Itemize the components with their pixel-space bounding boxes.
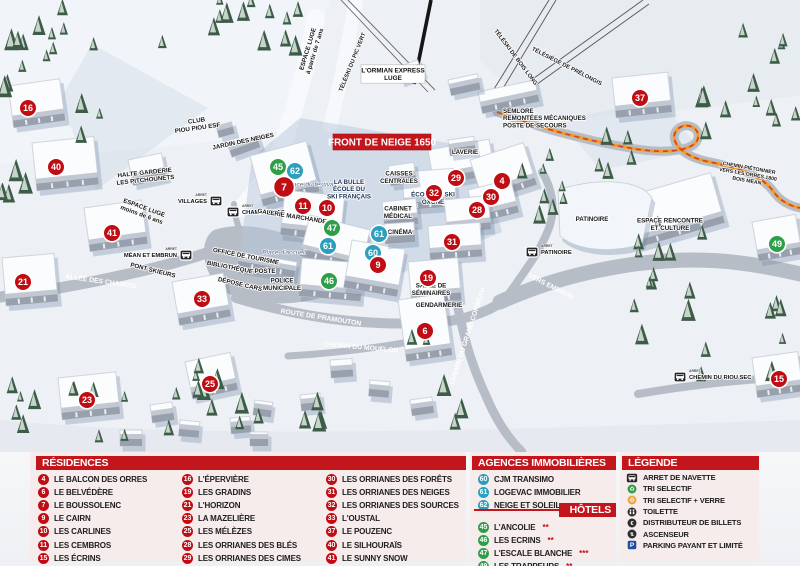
- number-badge: 23: [182, 513, 193, 524]
- map-label-poste: POSTE: [255, 268, 276, 275]
- number-badge: 40: [326, 540, 337, 551]
- svg-text:19: 19: [423, 273, 433, 283]
- number-badge: 45: [478, 522, 489, 533]
- residence-item-23: 23LA MAZELIÈRE: [182, 512, 326, 525]
- residence-item-7: 7LE BOUSSOLENC: [38, 499, 182, 512]
- residence-item-19: 19LES GRADINS: [182, 486, 326, 499]
- hotel-stars: **: [566, 562, 572, 566]
- legend-item-label: LES ORRIANES DES CIMES: [198, 554, 301, 563]
- svg-text:25: 25: [205, 379, 215, 389]
- number-badge: 21: [182, 500, 193, 511]
- number-badge: 37: [326, 526, 337, 537]
- hotels-divider: [474, 509, 562, 511]
- legend-item-label: LES ORRIANES DES BLÉS: [198, 541, 297, 550]
- map-marker-10: 10: [318, 199, 336, 217]
- legende-item-arret-de-navette: ARRET DE NAVETTE: [626, 472, 756, 483]
- svg-text:SKI FRANÇAIS: SKI FRANÇAIS: [327, 194, 371, 201]
- number-badge: 19: [182, 487, 193, 498]
- legende-list: ARRET DE NAVETTE♻TRI SELECTIF♻TRI SELECT…: [626, 472, 756, 551]
- svg-text:ARRET: ARRET: [165, 247, 178, 251]
- svg-text:6: 6: [422, 326, 427, 336]
- map-label-cabinet: CABINETMÉDICAL: [384, 205, 412, 219]
- svg-text:15: 15: [774, 374, 784, 384]
- svg-text:ARRET: ARRET: [242, 204, 255, 208]
- residence-item-30: 30LES ORRIANES DES FORÊTS: [326, 473, 470, 486]
- resort-map: recycle-greenrecycle-greenrecycle-greenr…: [0, 0, 800, 452]
- legend-item-label: L'ANCOLIE: [494, 523, 535, 532]
- map-marker-6: 6: [416, 322, 434, 340]
- map-label-patinoire: PATINOIRE: [576, 216, 609, 223]
- residence-item-31: 31LES ORRIANES DES NEIGES: [326, 486, 470, 499]
- number-badge: 29: [182, 553, 193, 564]
- map-marker-29: 29: [447, 169, 465, 187]
- map-marker-19: 19: [419, 269, 437, 287]
- legende-item-label: TRI SELECTIF + VERRE: [643, 496, 725, 505]
- svg-text:ESPACE RENCONTRE: ESPACE RENCONTRE: [637, 217, 703, 224]
- legend-item-label: CJM TRANSIMO: [494, 475, 554, 484]
- legend-item-label: LE BOUSSOLENC: [54, 501, 121, 510]
- legend-item-label: LES ORRIANES DES NEIGES: [342, 488, 450, 497]
- svg-text:30: 30: [486, 192, 496, 202]
- map-label-place-d-accueil: Place d'accueil: [262, 249, 306, 256]
- parking-icon: P: [626, 539, 638, 551]
- legend-strip: RÉSIDENCES 4LE BALCON DES ORRES6LE BELVÉ…: [0, 452, 800, 566]
- number-badge: 41: [326, 553, 337, 564]
- map-label-laverie: LAVERIE: [452, 149, 478, 156]
- legend-item-label: LES GRADINS: [198, 488, 251, 497]
- svg-text:REMONTÉES MÉCANIQUES: REMONTÉES MÉCANIQUES: [503, 114, 586, 122]
- svg-text:CINÉMA: CINÉMA: [388, 228, 413, 236]
- svg-text:POLICE: POLICE: [270, 277, 293, 284]
- legend-item-label: LES TRAPPEURS: [494, 562, 559, 566]
- svg-text:10: 10: [322, 203, 332, 213]
- map-marker-61: 61: [370, 225, 388, 243]
- legende-item-label: DISTRIBUTEUR DE BILLETS: [643, 518, 741, 527]
- map-label-l-ormian-express: L'ORMIAN EXPRESSLUGE: [361, 65, 425, 83]
- agencies-hotels-panel: AGENCES IMMOBILIÈRES 60CJM TRANSIMO61LOG…: [470, 452, 616, 562]
- legend-item-label: LES ÉCRINS: [54, 554, 101, 563]
- residence-item-33: 33L'OUSTAL: [326, 512, 470, 525]
- map-marker-33: 33: [193, 290, 211, 308]
- legend-item-label: LE BALCON DES ORRES: [54, 475, 147, 484]
- legende-item-tri-selectif: ♻TRI SELECTIF: [626, 483, 756, 494]
- legend-item-label: L'HORIZON: [198, 501, 240, 510]
- number-badge: 10: [38, 526, 49, 537]
- legende-item-label: TRI SELECTIF: [643, 484, 692, 493]
- svg-text:21: 21: [18, 277, 28, 287]
- svg-text:MÉDICAL: MÉDICAL: [384, 212, 412, 220]
- svg-text:CABINET: CABINET: [384, 205, 412, 212]
- residences-header: RÉSIDENCES: [36, 456, 466, 470]
- agency-item-60: 60CJM TRANSIMO: [478, 473, 612, 486]
- map-marker-23: 23: [78, 391, 96, 409]
- residence-item-15: 15LES ÉCRINS: [38, 552, 182, 565]
- legend-item-label: LE CAIRN: [54, 514, 91, 523]
- legende-item-distributeur-de-billets: €DISTRIBUTEUR DE BILLETS: [626, 517, 756, 528]
- legende-panel: LÉGENDE ARRET DE NAVETTE♻TRI SELECTIF♻TR…: [620, 452, 759, 562]
- legende-item-ascenseur: ⇅ASCENSEUR: [626, 528, 756, 539]
- map-label-caisses: CAISSESCENTRALES: [380, 170, 418, 184]
- map-marker-28: 28: [468, 201, 486, 219]
- map-marker-7: 7: [274, 177, 295, 198]
- map-marker-49: 49: [768, 235, 786, 253]
- legend-item-label: LE BELVÉDÈRE: [54, 488, 113, 497]
- legende-item-label: TOILETTE: [643, 507, 678, 516]
- svg-text:9: 9: [375, 260, 380, 270]
- legend-item-label: LES CARLINES: [54, 527, 111, 536]
- number-badge: 61: [478, 487, 489, 498]
- legend-item-label: LES ORRIANES DES SOURCES: [342, 501, 459, 510]
- map-label-gendarmerie: GENDARMERIE: [416, 302, 462, 309]
- bus-icon: [626, 472, 638, 484]
- legend-item-label: LOGEVAC IMMOBILIER: [494, 488, 580, 497]
- hotel-item-49: 49LES TRAPPEURS**: [478, 560, 612, 566]
- svg-text:ET CULTURE: ET CULTURE: [651, 225, 690, 232]
- svg-text:⇅: ⇅: [630, 532, 635, 538]
- svg-text:SÉMINAIRES: SÉMINAIRES: [412, 289, 451, 297]
- svg-text:45: 45: [273, 162, 283, 172]
- number-badge: 32: [326, 500, 337, 511]
- svg-text:VILLAGES: VILLAGES: [178, 199, 207, 205]
- residence-item-25: 25LES MÉLÈZES: [182, 525, 326, 538]
- map-marker-16: 16: [19, 99, 37, 117]
- number-badge: 46: [478, 535, 489, 546]
- hotels-list: 45L'ANCOLIE**46LES ECRINS**47L'ESCALE BL…: [478, 521, 612, 566]
- svg-text:46: 46: [324, 276, 334, 286]
- map-marker-37: 37: [631, 89, 649, 107]
- svg-text:23: 23: [82, 395, 92, 405]
- hotel-stars: **: [542, 523, 548, 532]
- legende-item-parking-payant-et-limit: PPARKING PAYANT ET LIMITÉ: [626, 540, 756, 551]
- hotel-item-45: 45L'ANCOLIE**: [478, 521, 612, 534]
- legend-item-label: LES CEMBROS: [54, 541, 111, 550]
- front-de-neige-banner: FRONT DE NEIGE 1650: [328, 134, 436, 150]
- map-label-cin-ma: CINÉMA: [388, 228, 413, 236]
- number-badge: 9: [38, 513, 49, 524]
- svg-text:MUNICIPALE: MUNICIPALE: [263, 285, 301, 292]
- number-badge: 49: [478, 561, 489, 566]
- legend-item-label: LE SUNNY SNOW: [342, 554, 407, 563]
- residence-item-41: 41LE SUNNY SNOW: [326, 552, 470, 565]
- map-marker-21: 21: [14, 273, 32, 291]
- map-marker-11: 11: [294, 197, 312, 215]
- hotel-stars: ***: [579, 549, 588, 558]
- svg-text:28: 28: [472, 205, 482, 215]
- number-badge: 25: [182, 526, 193, 537]
- legende-item-toilette: TOILETTE: [626, 506, 756, 517]
- svg-text:LA BULLE: LA BULLE: [334, 179, 364, 186]
- residence-item-28: 28LES ORRIANES DES BLÉS: [182, 538, 326, 551]
- svg-text:32: 32: [429, 188, 439, 198]
- number-badge: 11: [38, 540, 49, 551]
- map-marker-41: 41: [103, 224, 121, 242]
- agency-item-61: 61LOGEVAC IMMOBILIER: [478, 486, 612, 499]
- map-marker-40: 40: [47, 158, 65, 176]
- legend-item-label: L'ÉPERVIÈRE: [198, 475, 249, 484]
- svg-text:ARRET: ARRET: [541, 244, 554, 248]
- residence-item-37: 37LE POUZENC: [326, 525, 470, 538]
- number-badge: 30: [326, 474, 337, 485]
- svg-text:49: 49: [772, 239, 782, 249]
- svg-text:41: 41: [107, 228, 117, 238]
- residence-item-10: 10LES CARLINES: [38, 525, 182, 538]
- number-badge: 47: [478, 548, 489, 559]
- svg-text:61: 61: [374, 229, 384, 239]
- residence-item-6: 6LE BELVÉDÈRE: [38, 486, 182, 499]
- svg-text:ARRET: ARRET: [689, 369, 702, 373]
- svg-text:CENTRALES: CENTRALES: [380, 178, 418, 185]
- legend-item-label: LE POUZENC: [342, 527, 392, 536]
- hotel-item-46: 46LES ECRINS**: [478, 534, 612, 547]
- svg-text:LAVERIE: LAVERIE: [452, 149, 478, 156]
- recycle-yellow-icon: ♻: [626, 494, 638, 506]
- svg-text:♻: ♻: [629, 486, 634, 493]
- svg-text:33: 33: [197, 294, 207, 304]
- residence-item-40: 40LE SILHOURAÏS: [326, 538, 470, 551]
- number-badge: 33: [326, 513, 337, 524]
- legend-item-label: L'OUSTAL: [342, 514, 380, 523]
- residence-item-32: 32LES ORRIANES DES SOURCES: [326, 499, 470, 512]
- svg-text:FRONT DE NEIGE 1650: FRONT DE NEIGE 1650: [328, 137, 436, 148]
- residences-panel: RÉSIDENCES 4LE BALCON DES ORRES6LE BELVÉ…: [30, 452, 466, 562]
- svg-text:POSTE DE SECOURS: POSTE DE SECOURS: [503, 123, 567, 130]
- hotel-item-47: 47L'ESCALE BLANCHE***: [478, 547, 612, 560]
- svg-text:62: 62: [290, 166, 300, 176]
- residence-item-29: 29LES ORRIANES DES CIMES: [182, 552, 326, 565]
- residence-item-16: 16L'ÉPERVIÈRE: [182, 473, 326, 486]
- svg-text:€: €: [630, 521, 633, 527]
- svg-text:GENDARMERIE: GENDARMERIE: [416, 302, 462, 309]
- legende-item-label: ARRET DE NAVETTE: [643, 473, 715, 482]
- legende-item-label: PARKING PAYANT ET LIMITÉ: [643, 541, 743, 550]
- map-marker-32: 32: [425, 184, 443, 202]
- legende-item-tri-selectif-verre: ♻TRI SELECTIF + VERRE: [626, 495, 756, 506]
- svg-text:L'ORMIAN EXPRESS: L'ORMIAN EXPRESS: [361, 67, 425, 74]
- svg-text:SEMLORE: SEMLORE: [503, 108, 534, 115]
- map-marker-9: 9: [369, 256, 387, 274]
- svg-text:4: 4: [499, 176, 504, 186]
- residences-column-2: 16L'ÉPERVIÈRE19LES GRADINS21L'HORIZON23L…: [182, 473, 326, 565]
- map-marker-15: 15: [770, 370, 788, 388]
- svg-text:16: 16: [23, 103, 33, 113]
- svg-text:PATINOIRE: PATINOIRE: [541, 250, 572, 256]
- svg-text:31: 31: [447, 237, 457, 247]
- svg-text:40: 40: [51, 162, 61, 172]
- map-marker-47: 47: [323, 219, 341, 237]
- svg-text:CHEMIN DU RIOU SEC: CHEMIN DU RIOU SEC: [689, 375, 752, 381]
- recycle-green-icon: ♻: [626, 483, 638, 495]
- number-badge: 6: [38, 487, 49, 498]
- euro-icon: €: [626, 517, 638, 529]
- residence-item-11: 11LES CEMBROS: [38, 538, 182, 551]
- legend-item-label: LES ECRINS: [494, 536, 541, 545]
- svg-text:MÉAN ET EMBRUN: MÉAN ET EMBRUN: [124, 251, 177, 259]
- number-badge: 15: [38, 553, 49, 564]
- svg-text:37: 37: [635, 93, 645, 103]
- hotel-stars: **: [548, 536, 554, 545]
- number-badge: 16: [182, 474, 193, 485]
- map-marker-45: 45: [269, 158, 287, 176]
- svg-text:7: 7: [281, 183, 287, 194]
- legend-item-label: LE SILHOURAÏS: [342, 541, 402, 550]
- number-badge: 60: [478, 474, 489, 485]
- hotels-header: HÔTELS: [559, 503, 616, 517]
- svg-text:Place d'accueil: Place d'accueil: [262, 249, 306, 256]
- legend-item-label: LES ORRIANES DES FORÊTS: [342, 475, 452, 484]
- legende-header: LÉGENDE: [622, 456, 759, 470]
- map-marker-61: 61: [319, 237, 337, 255]
- legend-item-label: LA MAZELIÈRE: [198, 514, 255, 523]
- number-badge: 28: [182, 540, 193, 551]
- svg-text:ÉCOLE DU: ÉCOLE DU: [333, 185, 366, 193]
- agencies-header: AGENCES IMMOBILIÈRES: [472, 456, 616, 470]
- svg-text:LUGE: LUGE: [384, 75, 402, 82]
- map-marker-25: 25: [201, 375, 219, 393]
- map-marker-31: 31: [443, 233, 461, 251]
- svg-text:CAISSES: CAISSES: [385, 170, 412, 177]
- svg-text:11: 11: [298, 201, 308, 211]
- number-badge: 31: [326, 487, 337, 498]
- residence-item-4: 4LE BALCON DES ORRES: [38, 473, 182, 486]
- svg-text:47: 47: [327, 223, 337, 233]
- residences-column-1: 4LE BALCON DES ORRES6LE BELVÉDÈRE7LE BOU…: [38, 473, 182, 565]
- svg-text:♻: ♻: [629, 497, 634, 504]
- legende-item-label: ASCENSEUR: [643, 530, 689, 539]
- svg-text:PATINOIRE: PATINOIRE: [576, 216, 609, 223]
- svg-text:29: 29: [451, 173, 461, 183]
- legend-item-label: LES MÉLÈZES: [198, 527, 252, 536]
- map-marker-46: 46: [320, 272, 338, 290]
- residence-item-21: 21L'HORIZON: [182, 499, 326, 512]
- resort-map-page: recycle-greenrecycle-greenrecycle-greenr…: [0, 0, 800, 566]
- wc-icon: [626, 506, 638, 518]
- number-badge: 4: [38, 474, 49, 485]
- legend-item-label: L'ESCALE BLANCHE: [494, 549, 572, 558]
- residences-column-3: 30LES ORRIANES DES FORÊTS31LES ORRIANES …: [326, 473, 470, 565]
- elevator-icon: ⇅: [626, 528, 638, 540]
- residence-item-9: 9LE CAIRN: [38, 512, 182, 525]
- map-marker-4: 4: [493, 172, 511, 190]
- svg-text:P: P: [630, 543, 635, 550]
- svg-text:61: 61: [323, 241, 333, 251]
- map-marker-30: 30: [482, 188, 500, 206]
- svg-text:ARRET: ARRET: [195, 193, 208, 197]
- svg-text:POSTE: POSTE: [255, 268, 276, 275]
- number-badge: 7: [38, 500, 49, 511]
